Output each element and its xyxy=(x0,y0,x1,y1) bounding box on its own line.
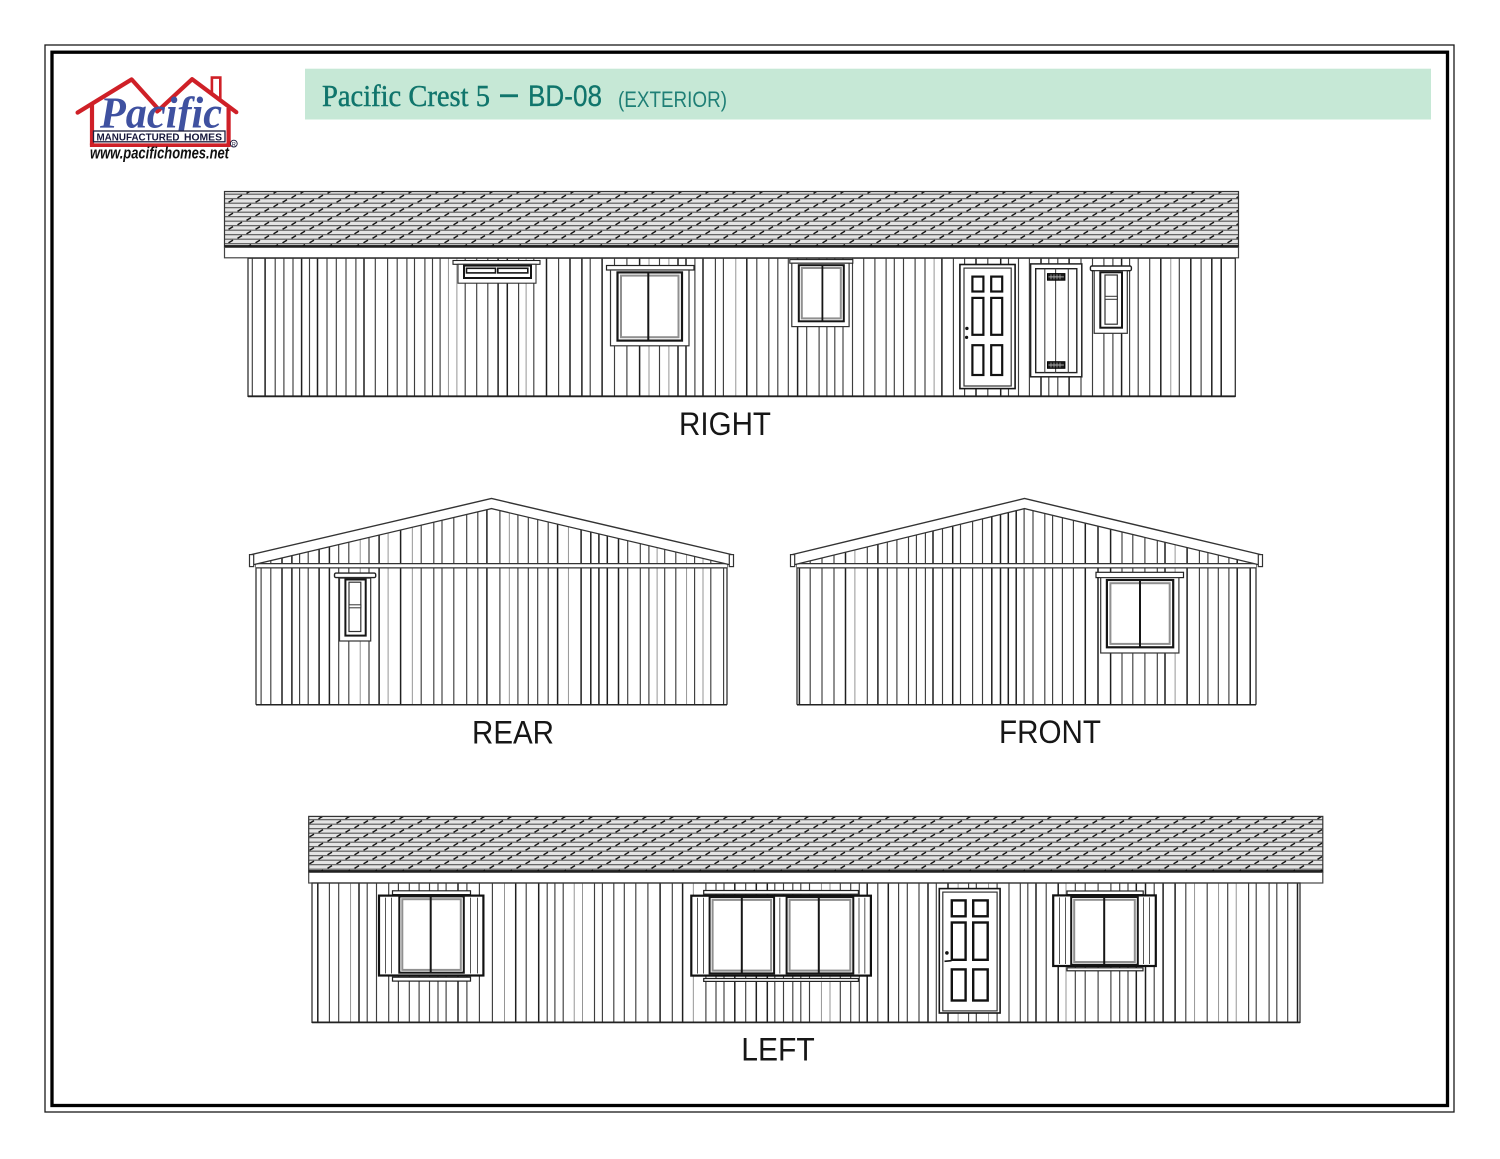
svg-text:BD-08: BD-08 xyxy=(528,80,602,113)
svg-text:Pacific: Pacific xyxy=(99,89,222,138)
svg-text:R: R xyxy=(232,142,236,148)
svg-text:Pacific Crest 5: Pacific Crest 5 xyxy=(322,78,490,113)
svg-text:www.pacifichomes.net: www.pacifichomes.net xyxy=(90,144,230,163)
svg-text:REAR: REAR xyxy=(472,714,554,750)
svg-text:(EXTERIOR): (EXTERIOR) xyxy=(618,87,727,112)
svg-text:HOMES: HOMES xyxy=(184,131,222,143)
svg-text:FRONT: FRONT xyxy=(999,714,1101,750)
svg-text:RIGHT: RIGHT xyxy=(679,406,771,442)
svg-text:LEFT: LEFT xyxy=(741,1032,815,1068)
svg-text:MANUFACTURED: MANUFACTURED xyxy=(97,131,180,143)
